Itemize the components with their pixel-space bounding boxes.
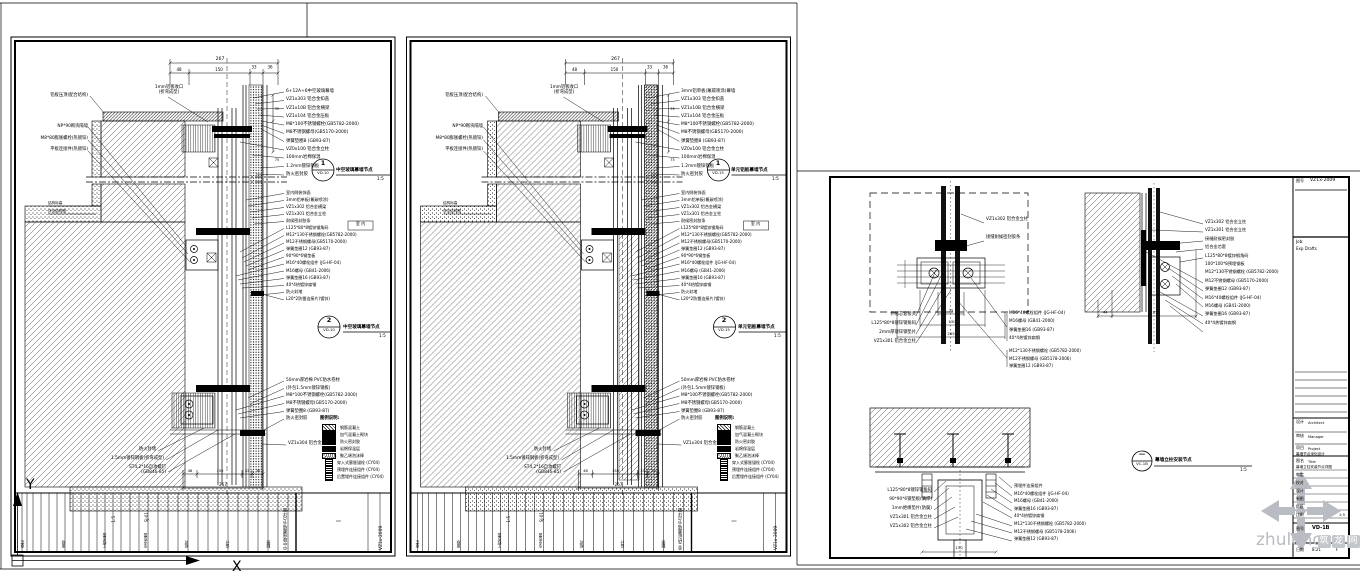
annotation-label: 弹簧垫圈8 (GB93-87) xyxy=(681,138,791,146)
tb-doc-label: 图号 xyxy=(1296,179,1304,184)
legend-item: 穿入式膨胀锚栓 (CY04) xyxy=(717,459,791,466)
annotation-column-mid: 室内侧装饰面3mm铝单板(氟碳喷涂)VZ1x302 铝合金横梁VZ1x301 铝… xyxy=(286,190,396,303)
annotation-label: M8*100不锈钢螺栓(GB5782-2000) xyxy=(286,121,396,129)
annotation-label: VZ1x104 铝合金压板 xyxy=(286,113,396,121)
tb-row-label: 审核 xyxy=(1296,434,1304,439)
legend-label: 防火密封胶 xyxy=(735,439,755,445)
legend-item: 预埋件连接组件 (CY04) xyxy=(322,467,396,474)
titlestrip-number: VZ1x-2009 xyxy=(379,498,384,550)
annotation-label: 弹簧垫圈8 (GB93-87) xyxy=(681,408,791,416)
callout-ref: VD-10 xyxy=(312,171,334,175)
callout-ref: VD-15 xyxy=(713,328,735,332)
legend-swatch-icon xyxy=(322,446,336,453)
callout-title: 幕墙立柱安装节点 xyxy=(1155,458,1192,463)
annotation-label: 弹簧垫圈16 (GB93-87) xyxy=(1009,327,1109,335)
legend-item: 防火密封胶 xyxy=(717,438,791,445)
callout-scale: 1:5 xyxy=(1240,468,1247,473)
svg-text:35: 35 xyxy=(275,107,279,111)
tb-small-row: 设计 xyxy=(1294,488,1347,496)
annotation-label: 1mm绝缘垫片(防腐) xyxy=(836,505,932,514)
insulation-band xyxy=(249,85,262,487)
tb-title-value: 幕墙立柱安装节点详图 xyxy=(1296,465,1346,469)
left-label: 平板连接件(热镀锌) xyxy=(16,148,88,153)
annotation-label: 弹簧垫圈16 (GB93-87) xyxy=(681,275,791,282)
annotation-column-top: 6+12A+6中空玻璃幕墙VZ1x303 铝合金扣盖VZ1x10B 铝合金横梁V… xyxy=(286,88,396,179)
annotation-label: L20*2防雷连接片(镀锌) xyxy=(681,296,791,303)
callout-title: 中空玻璃幕墙节点 xyxy=(343,325,380,330)
annotation-label: VZ1x302 铝合金立柱 xyxy=(986,218,1028,223)
bottom-label: ST4.2*16自攻螺钉 (GB846-85) xyxy=(495,466,561,476)
callout-title: 单元铝板幕墙节点 xyxy=(731,168,768,173)
annotation-label: 弹簧垫圈16 (GB93-87) xyxy=(1205,311,1297,319)
titlestrip-field-label: 制图 xyxy=(266,496,270,548)
annotation-label: M16螺母 (GB41-2006) xyxy=(286,268,396,275)
legend-swatch-icon xyxy=(322,424,336,431)
detail-c-right-labels: 预埋件连接组件M16*40螺栓组件 (JG-HF-04)M16螺母 (GB41-… xyxy=(1014,483,1124,544)
annotation-label: VZ1x104 铝合金压板 xyxy=(681,113,791,121)
annotation-label: 室内侧装饰面 xyxy=(286,190,396,197)
annotation-label: M16*40螺栓组件 (JG-HF-04) xyxy=(286,260,396,267)
titlestrip-field-label: 校对 xyxy=(579,496,583,548)
annotation-label: 预埋件连接组件 xyxy=(1014,483,1124,491)
detail-a-left-labels: 伸缩芯套接头L125*80*8镀锌钢角码2mm厚镀锌钢垫片VZ1x301 铝合金… xyxy=(848,311,916,347)
legend-item: 穿入式膨胀锚栓 (CY04) xyxy=(322,459,396,466)
legend-label: 加气混凝土砌块 xyxy=(340,432,368,438)
annotation-label: M12*130不锈钢螺栓 (GB5782-2000) xyxy=(1014,521,1124,529)
annotation-label: 弹簧垫圈16 (GB93-87) xyxy=(286,275,396,282)
svg-text:75: 75 xyxy=(949,308,954,313)
annotation-label: M8*100不锈钢螺栓(GB5782-2000) xyxy=(681,392,791,400)
annotation-label: (外包1.5mm镀锌钢板) xyxy=(681,385,791,393)
tb-small-row-label: 设计 xyxy=(1296,488,1304,496)
watermark-char-box: 龙 xyxy=(1332,535,1345,548)
left-label: 平板连接件(热镀锌) xyxy=(411,148,483,153)
legend-item: 岩棉保温层 xyxy=(322,445,396,452)
annotation-label: 40*4热镀锌扁钢 xyxy=(681,282,791,289)
annotation-label: 防火密封胶 xyxy=(681,415,791,423)
legend-swatch-icon xyxy=(322,438,336,445)
legend: 钢筋混凝土 加气混凝土砌块 防火密封胶 岩棉保温层 聚乙烯泡沫棒 穿入式膨胀锚栓… xyxy=(717,424,791,481)
titlestrip-code: SJ-01 xyxy=(145,512,150,522)
tb-doc-number: VZ1x-2009 xyxy=(1310,178,1335,183)
left-label: M8*80膨胀螺栓(热镀锌) xyxy=(411,137,483,142)
legend-item: 加气混凝土砌块 xyxy=(717,431,791,438)
tb-row-sub: Manager xyxy=(1308,435,1324,439)
level-label: 结构标高 xyxy=(48,201,62,205)
level-label: 详见结构图 xyxy=(48,209,66,213)
svg-text:75: 75 xyxy=(275,158,279,162)
annotation-label: 2mm厚镀锌钢垫片 xyxy=(848,329,916,338)
legend-label: 穿入式膨胀锚栓 (CY04) xyxy=(732,460,775,466)
svg-text:267: 267 xyxy=(219,482,227,487)
annotation-label: M16螺母 (GB41-2000) xyxy=(1009,318,1109,326)
callout-ref: VD-10 xyxy=(318,328,340,332)
tb-rev: F xyxy=(1336,548,1338,553)
legend-item: 防火密封胶 xyxy=(322,438,396,445)
annotation-label: VZ0x100 铝合金立柱 xyxy=(681,146,791,154)
annotation-label: VZ0x100 铝合金立柱 xyxy=(286,146,396,154)
annotation-label: L125*80*8镀锌钢角码 xyxy=(1205,253,1297,261)
svg-text:33: 33 xyxy=(251,65,257,70)
annotation-label: 100mm岩棉保温 xyxy=(286,154,396,162)
detail-c-left-labels: L125*80*8镀锌钢角码90*90*6钢垫板(满焊)1mm绝缘垫片(防腐)V… xyxy=(836,487,932,532)
legend-item: 聚乙烯泡沫棒 xyxy=(322,452,396,459)
tb-small-row-label: 校对 xyxy=(1296,480,1304,488)
callout-number: 2 xyxy=(323,317,335,324)
tb-small-row: 审定 xyxy=(1294,472,1347,480)
tb-small-rows: 审定 校对 设计 制图 阶段 比例 1:5 xyxy=(1294,472,1347,520)
legend-title: 图例说明: xyxy=(715,416,734,421)
annotation-label: 防火封堵 xyxy=(286,289,396,296)
annotation-label: 弹簧垫圈8 (GB93-87) xyxy=(286,138,396,146)
watermark-text: zhulong xyxy=(1256,531,1323,551)
legend-item: 钢筋混凝土 xyxy=(717,424,791,431)
watermark-char-box: 网 xyxy=(1347,535,1360,548)
tb-job-line: Exp Drafts xyxy=(1296,247,1317,252)
titlestrip-field-label: 设计 xyxy=(225,496,229,548)
tb-small-row: 制图 xyxy=(1294,496,1347,504)
titlestrip-number: VZ1x-2009 xyxy=(774,498,779,550)
legend-label: 聚乙烯泡沫棒 xyxy=(735,453,759,459)
legend-item: 后置埋件连接组件 (CY04) xyxy=(322,474,396,481)
annotation-label: L125*80*8镀锌钢角码 xyxy=(836,487,932,496)
legend-swatch-icon xyxy=(717,446,731,453)
y-axis-label: Y xyxy=(25,477,35,493)
left-label: 铝板压顶(配合结构) xyxy=(411,94,483,99)
legend-swatch-icon xyxy=(717,438,731,445)
legend: 钢筋混凝土 加气混凝土砌块 防火密封胶 岩棉保温层 聚乙烯泡沫棒 穿入式膨胀锚栓… xyxy=(322,424,396,481)
annotation-label: VZ1x302 铝合金立柱 xyxy=(836,523,932,532)
bottom-label: 1.5mm镀锌钢板(折弯成型) xyxy=(88,457,164,462)
callout-ref: VD-15 xyxy=(707,171,729,175)
legend-item: 岩棉保温层 xyxy=(717,445,791,452)
tb-row-label: 图名 xyxy=(1296,459,1304,464)
head-insulation xyxy=(182,125,215,152)
legend-swatch-icon xyxy=(720,473,728,481)
legend-label: 防火密封胶 xyxy=(340,439,360,445)
tb-row-label: 项目 xyxy=(1296,446,1304,451)
legend-item: 聚乙烯泡沫棒 xyxy=(717,452,791,459)
annotation-label: M8不锈钢螺母(GB5170-2000) xyxy=(286,400,396,408)
parapet-wall-hatch xyxy=(101,121,185,177)
x-axis-label: X xyxy=(232,559,242,573)
annotation-label: 100mm岩棉保温 xyxy=(681,154,791,162)
annotation-column-bottom: 50mm厚岩棉 PVC防水卷材(外包1.5mm镀锌钢板)M8*100不锈钢螺栓(… xyxy=(286,377,396,423)
annotation-label: 弹簧垫圈12 (GB93-87) xyxy=(1014,536,1124,544)
annotation-label: 弹簧垫圈12 (GB93-87) xyxy=(1205,286,1297,294)
top-flashing-label: 1mm铝板收口 (折弯成型) xyxy=(535,86,593,96)
legend-label: 钢筋混凝土 xyxy=(340,425,360,431)
legend-label: 加气混凝土砌块 xyxy=(735,432,763,438)
legend-label: 钢筋混凝土 xyxy=(735,425,755,431)
annotation-label: L20*2防雷连接片(镀锌) xyxy=(286,296,396,303)
annotation-label: M12*130不锈钢螺栓 (GB5782-2000) xyxy=(1009,348,1119,356)
callout-scale: 1:5 xyxy=(772,177,779,182)
section-cut-boxes xyxy=(207,158,218,262)
tb-job-line: Job: xyxy=(1296,240,1304,245)
annotation-label: M8*100不锈钢螺栓(GB5782-2000) xyxy=(681,121,791,129)
titlestrip-fields: 审定审核工程负责专业负责校对设计制图 xyxy=(20,496,270,550)
tb-small-row-value: 1:5 xyxy=(1339,512,1345,520)
tb-row-sub: Project xyxy=(1308,447,1320,451)
annotation-label: 防火密封胶 xyxy=(286,415,396,423)
tb-small-row-label: 审定 xyxy=(1296,472,1304,480)
legend-label: 聚乙烯泡沫棒 xyxy=(340,453,364,459)
legend-swatch-icon xyxy=(322,431,336,438)
bottom-label: 1.5mm镀锌钢板(折弯成型) xyxy=(483,457,559,462)
bottom-label: 防火封堵 xyxy=(495,448,551,453)
level-label: 详见结构图 xyxy=(443,209,461,213)
svg-text:48: 48 xyxy=(188,469,193,473)
callout-number: 1 xyxy=(712,160,724,167)
svg-text:150: 150 xyxy=(215,67,223,72)
tb-small-row-label: 阶段 xyxy=(1296,504,1304,512)
titlestrip-field-label: 设计 xyxy=(620,496,624,548)
watermark-boxes: 筑龙网 xyxy=(1316,535,1360,548)
annotation-label: 弹簧垫圈12 (GB93-87) xyxy=(1009,363,1119,371)
annotation-label: 6+12A+6中空玻璃幕墙 xyxy=(286,88,396,96)
annotation-column-top: 3mm铝单板(氟碳喷涂)幕墙VZ1x303 铝合金扣盖VZ1x10B 铝合金横梁… xyxy=(681,88,791,179)
tb-row-label: 设计 xyxy=(1296,420,1304,425)
legend-swatch-icon xyxy=(325,473,333,481)
svg-text:285: 285 xyxy=(947,331,955,336)
annotation-label: 室内侧装饰面 xyxy=(681,190,791,197)
left-label: NP*90砌块隔墙 xyxy=(16,125,88,130)
legend-label: 后置埋件连接组件 (CY04) xyxy=(732,474,779,480)
watermark-char-box: 筑 xyxy=(1318,535,1331,548)
tb-small-row: 比例 1:5 xyxy=(1294,512,1347,520)
svg-text:130: 130 xyxy=(948,319,956,324)
tb-project-value: 幕墙节点深化设计 xyxy=(1296,452,1346,456)
annotation-label: VZ1x10B 铝合金横梁 xyxy=(681,105,791,113)
bottom-label: 防火封堵 xyxy=(100,448,156,453)
annotation-label: VZ1x301 铝合金立柱 xyxy=(848,338,916,347)
titlestrip-title: 中空玻璃幕墙节点详图 xyxy=(283,496,288,550)
svg-text:36: 36 xyxy=(256,469,261,473)
annotation-label: 50mm厚岩棉 PVC防水卷材 xyxy=(286,377,396,385)
legend-label: 预埋件连接组件 (CY04) xyxy=(732,467,775,473)
detail-a-bolt-labels-2: M12*130不锈钢螺栓 (GB5782-2000)M12不锈钢螺母 (GB51… xyxy=(1009,348,1119,371)
svg-text:36: 36 xyxy=(267,65,273,70)
svg-text:33: 33 xyxy=(245,469,250,473)
annotation-column-bottom: 50mm厚岩棉 PVC防水卷材(外包1.5mm镀锌钢板)M8*100不锈钢螺栓(… xyxy=(681,377,791,423)
detail-callout-symbol-3 xyxy=(1132,451,1252,471)
annotation-column-mid: 室内侧装饰面3mm铝单板(氟碳喷涂)VZ1x302 铝合金横梁VZ1x301 铝… xyxy=(681,190,791,303)
titlestrip-fields: 审定审核工程负责专业负责校对设计制图 xyxy=(415,496,665,550)
callout-title: 单元铝板幕墙节点 xyxy=(738,325,775,330)
titlestrip-field-label: 审定 xyxy=(20,496,24,548)
annotation-label: M8不锈钢螺母(GB5170-2000) xyxy=(681,129,791,137)
room-tag: 室 内 xyxy=(744,222,767,227)
titlestrip-field-label: 工程负责 xyxy=(102,496,106,548)
titlestrip-field-label: 审定 xyxy=(415,496,419,548)
annotation-label: 3mm铝单板(氟碳喷涂)幕墙 xyxy=(681,88,791,96)
annotation-label: VZ1x301 铝合金立柱 xyxy=(1205,227,1297,235)
svg-text:130: 130 xyxy=(955,545,963,550)
annotation-label: 50mm厚岩棉 PVC防水卷材 xyxy=(681,377,791,385)
legend-label: 预埋件连接组件 (CY04) xyxy=(337,467,380,473)
annotation-label: 弹簧垫圈8 (GB93-87) xyxy=(286,408,396,416)
annotation-label: 40*4热镀锌扁钢 xyxy=(1009,335,1109,343)
top-dimension xyxy=(169,59,280,85)
annotation-label: M16螺母 (GB41-2000) xyxy=(1014,498,1124,506)
cad-drawing-page: 267 48 150 33 36 48 150 33 36 267 35 75 xyxy=(0,0,1360,573)
annotation-label: 接缝耐候密封胶条 xyxy=(986,236,1020,241)
annotation-label: VZ1x301 铝合金立柱 xyxy=(836,514,932,523)
legend-title: 图例说明: xyxy=(320,416,339,421)
annotation-label: 90*90*6钢垫板(满焊) xyxy=(836,496,932,505)
left-label: NP*90砌块隔墙 xyxy=(411,125,483,130)
callout-title: 中空玻璃幕墙节点 xyxy=(336,168,373,173)
callout-number: 2 xyxy=(718,317,730,324)
left-label: 铝板压顶(配合结构) xyxy=(16,94,88,99)
annotation-label: 40*4热镀锌扁钢 xyxy=(286,282,396,289)
coping-hatch xyxy=(103,112,223,121)
callout-scale: 1:5 xyxy=(774,334,781,339)
titlestrip-scale: 1:5 xyxy=(112,516,117,522)
titlestrip-code: SJ-01 xyxy=(540,512,545,522)
annotation-label: VZ1x303 铝合金扣盖 xyxy=(681,96,791,104)
titlestrip-field-label: 制图 xyxy=(661,496,665,548)
annotation-label: M16*40螺栓组件 (JG-HF-04) xyxy=(681,260,791,267)
legend-swatch-icon xyxy=(717,424,731,431)
legend-label: 岩棉保温层 xyxy=(340,446,360,452)
tb-row-sub: Title xyxy=(1308,460,1316,464)
annotation-label: M16*40螺栓组件 (JG-HF-04) xyxy=(1205,295,1297,303)
sill-insulation xyxy=(172,393,215,428)
annotation-label: 40*4热镀锌扁钢 xyxy=(1014,513,1124,521)
level-label: 结构标高 xyxy=(443,201,457,205)
annotation-label: M16螺母 (GB41-2006) xyxy=(681,268,791,275)
annotation-label: L125*80*8镀锌钢角码 xyxy=(848,320,916,329)
annotation-label: VZ1x10B 铝合金横梁 xyxy=(286,105,396,113)
detail-b-labels: VZ1x302 铝合金立柱VZ1x301 铝合金立柱接缝耐候密封胶铝合金芯套L1… xyxy=(1205,219,1297,328)
annotation-label: 防火封堵 xyxy=(681,289,791,296)
legend-item: 后置埋件连接组件 (CY04) xyxy=(717,474,791,481)
legend-label: 岩棉保温层 xyxy=(735,446,755,452)
room-tag: 室 内 xyxy=(349,222,372,227)
titlestrip-field-label: 校对 xyxy=(184,496,188,548)
annotation-label: 伸缩芯套接头 xyxy=(848,311,916,320)
svg-text:267: 267 xyxy=(216,56,225,62)
annotation-label: M8不锈钢螺母(GB5170-2000) xyxy=(681,400,791,408)
legend-label: 穿入式膨胀锚栓 (CY04) xyxy=(337,460,380,466)
svg-text:185: 185 xyxy=(1150,310,1158,315)
legend-label: 后置埋件连接组件 (CY04) xyxy=(337,474,384,480)
titlestrip-title: 单元铝板幕墙节点详图 xyxy=(678,496,683,550)
annotation-label: 接缝耐候密封胶 xyxy=(1205,236,1297,244)
left-label: M8*80膨胀螺栓(热镀锌) xyxy=(16,137,88,142)
tb-small-row-label: 制图 xyxy=(1296,496,1304,504)
annotation-label: 40*4热镀锌扁钢 xyxy=(1205,320,1297,328)
legend-item: 加气混凝土砌块 xyxy=(322,431,396,438)
detail-c-soffit-anchor xyxy=(870,408,1030,562)
titlestrip-scale: 1:5 xyxy=(507,516,512,522)
tb-row-sub: Architect xyxy=(1308,421,1324,425)
titlestrip-field-label: 工程负责 xyxy=(497,496,501,548)
callout-scale: 1:5 xyxy=(379,334,386,339)
cad-linework: 267 48 150 33 36 48 150 33 36 267 35 75 xyxy=(0,0,1360,573)
tb-small-row: 阶段 xyxy=(1294,504,1347,512)
detail-a-bolt-labels-1: M16*40螺栓组件 (JG-HF-04)M16螺母 (GB41-2000)弹簧… xyxy=(1009,310,1109,344)
tb-small-row-label: 比例 xyxy=(1296,512,1304,520)
annotation-label: M12不锈钢螺母 (GB5170-2000) xyxy=(1205,278,1297,286)
callout-number: 1 xyxy=(317,160,329,167)
annotation-label: M8不锈钢螺母(GB5170-2000) xyxy=(286,129,396,137)
titlestrip-field-label: 审核 xyxy=(456,496,460,548)
legend-item: 钢筋混凝土 xyxy=(322,424,396,431)
top-flashing-label: 1mm铝板收口 (折弯成型) xyxy=(140,86,198,96)
annotation-label: 铝合金芯套 xyxy=(1205,244,1297,252)
callout-number: — xyxy=(1136,451,1148,458)
titlestrip-field-label: 审核 xyxy=(61,496,65,548)
annotation-label: VZ1x303 铝合金扣盖 xyxy=(286,96,396,104)
annotation-label: (外包1.5mm镀锌钢板) xyxy=(286,385,396,393)
svg-text:150: 150 xyxy=(217,469,225,473)
tb-small-row: 校对 xyxy=(1294,480,1347,488)
annotation-label: M12*130不锈钢螺栓 (GB5782-2000) xyxy=(1205,269,1297,277)
legend-item: 预埋件连接组件 (CY04) xyxy=(717,467,791,474)
bottom-label: ST4.2*16自攻螺钉 (GB846-85) xyxy=(100,466,166,476)
callout-ref: VC-1B xyxy=(1131,462,1153,466)
annotation-label: M8*100不锈钢螺栓(GB5782-2000) xyxy=(286,392,396,400)
callout-scale: 1:5 xyxy=(377,177,384,182)
legend-swatch-icon xyxy=(717,431,731,438)
svg-text:48: 48 xyxy=(176,67,182,72)
